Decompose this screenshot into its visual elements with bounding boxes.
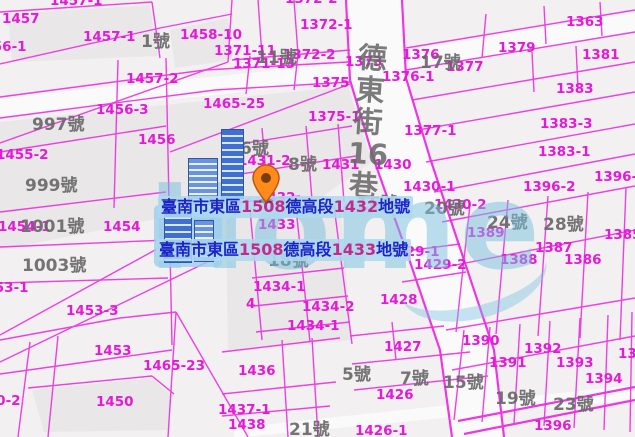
parcel-number-label: 1390 [462, 334, 500, 348]
parcel-number-label: 1454 [103, 220, 141, 234]
house-number-label: 28號 [543, 216, 584, 234]
parcel-number-label: 1453 [94, 344, 132, 358]
parcel-number-label: 1437-1 [218, 403, 271, 417]
label-text: 1433 [332, 240, 377, 259]
parcel-number-label: 1453-3 [66, 304, 119, 318]
house-number-label: 999號 [25, 177, 78, 195]
house-number-label: 24號 [487, 214, 528, 232]
house-number-label: 23號 [553, 396, 594, 414]
parcel-number-label: 1457-2 [126, 72, 179, 86]
parcel-number-label: 1385 [604, 228, 635, 242]
house-number-label: 19號 [495, 390, 536, 408]
parcel-number-label: 4 [246, 297, 255, 311]
house-number-label: 6號 [240, 140, 269, 158]
house-number-label: 21號 [289, 421, 330, 437]
house-number-label: 1001號 [20, 218, 84, 236]
label-text: 地號 [378, 197, 410, 216]
house-number-label: 5號 [342, 366, 371, 384]
street-char: 東 [351, 73, 389, 107]
parcel-number-label: 1391 [489, 356, 527, 370]
label-text: 德高段 [286, 197, 334, 216]
house-number-label: 1號 [141, 33, 170, 51]
parcel-number-label: 1375 [312, 76, 350, 90]
parcel-number-label: 1455-2 [0, 148, 49, 162]
parcel-number-label: 1453-1 [0, 281, 29, 295]
parcel-number-label: 1433 [258, 218, 296, 232]
parcel-number-label: 1426 [376, 388, 414, 402]
parcel-number-label: 1377-1 [404, 124, 457, 138]
house-number-label: 17號 [420, 54, 461, 72]
building-icon [221, 129, 244, 199]
parcel-number-label: 1465-23 [143, 359, 205, 373]
parcel-number-label: 1396 [534, 419, 572, 433]
parcel-number-label: 1396-2 [523, 180, 576, 194]
parcel-number-label: 1372-2 [285, 0, 338, 6]
house-number-label: 1003號 [22, 257, 86, 275]
parcel-number-label: 1379 [498, 41, 536, 55]
label-text: 1508 [239, 240, 284, 259]
parcel-number-label: 1456 [138, 133, 176, 147]
map-canvas[interactable]: 1457-114571456-11457-11458-101457-21372-… [0, 0, 635, 437]
parcel-number-label: 1456-1 [0, 40, 27, 54]
parcel-number-label: 1457-1 [83, 30, 136, 44]
parcel-number-label: 1450-2 [0, 394, 21, 408]
parcel-number-label: 1383-1 [538, 145, 591, 159]
parcel-number-label: 1430-1 [403, 180, 456, 194]
parcel-number-label: 1393 [556, 356, 594, 370]
parcel-number-label: 1436 [238, 364, 276, 378]
house-number-label: 11號 [256, 49, 297, 67]
house-number-label: 20號 [424, 200, 465, 218]
parcel-number-label: 1456-3 [96, 103, 149, 117]
selected-parcel-label-1433: 臺南市東區1508德高段1433地號 [156, 239, 411, 261]
parcel-number-label: 1372-1 [300, 18, 353, 32]
parcel-number-label: 1381 [582, 48, 620, 62]
house-number-label: 997號 [32, 116, 85, 134]
label-text: 臺南市東區 [159, 240, 239, 259]
parcel-number-label: 1396-1 [594, 170, 635, 184]
parcel-number-label: 1392 [524, 342, 562, 356]
parcel-number-label: 1383-3 [540, 117, 593, 131]
parcel-number-label: 1434-1 [287, 319, 340, 333]
parcel-number-label: 1457-1 [50, 0, 103, 8]
parcel-number-label: 1450 [96, 395, 134, 409]
street-char: 16 [347, 137, 385, 171]
parcel-number-label: 1427 [384, 340, 422, 354]
parcel-number-label: 1438 [228, 418, 266, 432]
street-char: 街 [349, 105, 387, 139]
parcel-number-label: 1457 [2, 12, 40, 26]
parcel-number-label: 1383 [556, 82, 594, 96]
selected-parcel-label-1432: 臺南市東區1508德高段1432地號 [158, 196, 413, 218]
label-text: 德高段 [284, 240, 332, 259]
parcel-number-label: 1394 [585, 372, 623, 386]
house-number-label: 15號 [443, 374, 484, 392]
street-char: 德 [353, 41, 391, 75]
parcel-number-label: 1386 [564, 253, 602, 267]
label-text: 1432 [334, 197, 379, 216]
label-text: 地號 [376, 240, 408, 259]
house-number-label: 8號 [288, 156, 317, 174]
parcel-number-label: 1363 [566, 15, 604, 29]
parcel-boundaries-svg [0, 0, 635, 437]
label-text: 臺南市東區 [161, 197, 241, 216]
parcel-number-label: 1395 [618, 347, 635, 361]
house-number-label: 7號 [400, 370, 429, 388]
parcel-number-label: 1458-10 [180, 28, 242, 42]
parcel-number-label: 1434-1 [253, 280, 306, 294]
parcel-number-label: 1426-1 [355, 424, 408, 437]
location-pin-icon[interactable] [252, 164, 280, 204]
parcel-number-label: 1434-2 [302, 300, 355, 314]
parcel-number-label: 1465-25 [203, 97, 265, 111]
